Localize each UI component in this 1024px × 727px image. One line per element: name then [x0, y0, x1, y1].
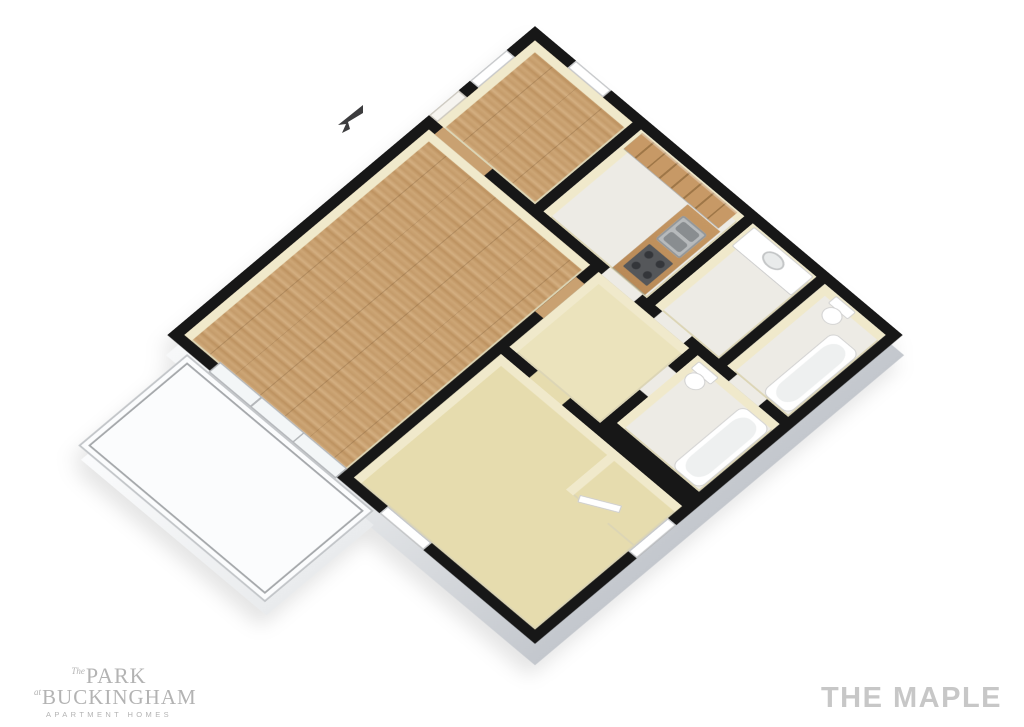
logo-tagline: APARTMENT HOMES — [34, 711, 184, 719]
entry-arrow-icon — [332, 102, 366, 136]
floorplan-page: ThePark atBuckingham APARTMENT HOMES THE… — [0, 0, 1024, 727]
community-logo: ThePark atBuckingham APARTMENT HOMES — [34, 665, 184, 719]
logo-line-1: ThePark — [34, 665, 184, 687]
plan-title: THE MAPLE — [821, 682, 1002, 715]
logo-line-2: atBuckingham — [34, 687, 184, 708]
floorplan-3d-view — [167, 26, 902, 644]
